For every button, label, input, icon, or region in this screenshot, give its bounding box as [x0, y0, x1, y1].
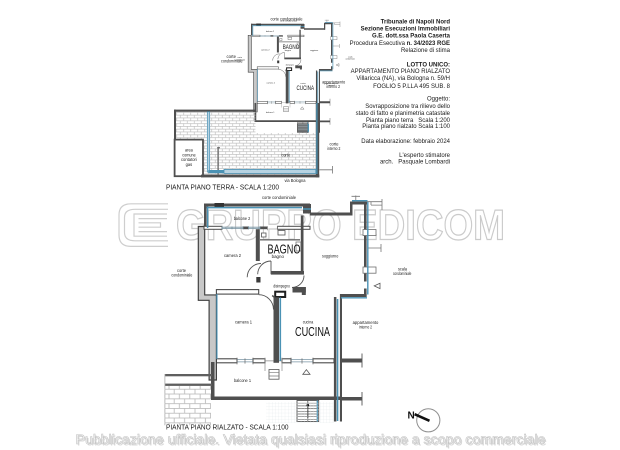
svg-text:stato di fatto e planimetria c: stato di fatto e planimetria catastale [356, 111, 451, 117]
svg-text:corte condominiale: corte condominiale [271, 16, 304, 21]
svg-text:G.E. dott.ssa Paola Caserta: G.E. dott.ssa Paola Caserta [372, 34, 451, 40]
svg-text:interno 2: interno 2 [359, 324, 372, 329]
svg-text:soggiorno: soggiorno [322, 254, 339, 259]
svg-text:Oggetto:: Oggetto: [427, 97, 450, 103]
svg-text:camera 1: camera 1 [235, 319, 253, 324]
svg-text:camera 2: camera 2 [224, 253, 242, 258]
svg-text:PIANTA PIANO RIALZATO - SCALA: PIANTA PIANO RIALZATO - SCALA 1:100 [166, 422, 289, 431]
svg-text:Tribunale di Napoli Nord: Tribunale di Napoli Nord [381, 19, 451, 25]
svg-text:corte: corte [281, 152, 291, 157]
svg-text:balcone 2: balcone 2 [234, 216, 251, 221]
svg-text:interno 2: interno 2 [327, 84, 341, 89]
svg-text:N: N [408, 411, 415, 422]
svg-text:GRUPPO EDICOM: GRUPPO EDICOM [176, 202, 505, 250]
svg-text:Pubblicazione ufficiale. Vieta: Pubblicazione ufficiale. Vietata qualsia… [76, 432, 546, 447]
svg-text:Procedura Esecutiva n. 34/2023: Procedura Esecutiva n. 34/2023 RGE [350, 41, 450, 47]
svg-text:corte condominiale: corte condominiale [262, 195, 297, 200]
svg-text:condominiale: condominiale [221, 58, 243, 63]
svg-text:L'esperto stimatore: L'esperto stimatore [399, 153, 450, 159]
svg-text:condominiale: condominiale [393, 271, 412, 276]
svg-text:balcone 1: balcone 1 [234, 378, 252, 383]
svg-text:CUCINA: CUCINA [295, 325, 330, 339]
svg-text:Relazione di stima: Relazione di stima [401, 48, 451, 54]
svg-text:cucina: cucina [303, 320, 314, 325]
svg-text:Data elaborazione: febbraio 20: Data elaborazione: febbraio 2024 [361, 139, 450, 145]
svg-text:Villaricca (NA), via Bologna n: Villaricca (NA), via Bologna n. 59/H [356, 76, 450, 82]
svg-text:APPARTAMENTO PIANO RIALZATO: APPARTAMENTO PIANO RIALZATO [351, 69, 451, 75]
svg-text:gas: gas [186, 162, 193, 167]
svg-text:Pianta piano rialzato Scala 1:: Pianta piano rialzato Scala 1:100 [362, 124, 450, 130]
svg-text:PIANTA PIANO TERRA - SCALA 1:2: PIANTA PIANO TERRA - SCALA 1:200 [166, 183, 279, 192]
svg-text:Pianta piano terra Scala 1:2: Pianta piano terra Scala 1:200 [366, 118, 451, 124]
svg-text:FOGLIO 5 P.LLA 495 SUB. 8: FOGLIO 5 P.LLA 495 SUB. 8 [373, 84, 451, 90]
svg-text:via Bologna: via Bologna [285, 178, 306, 183]
svg-text:Sezione Esecuzioni Immobiliari: Sezione Esecuzioni Immobiliari [361, 26, 451, 32]
svg-text:LOTTO UNICO:: LOTTO UNICO: [407, 62, 450, 68]
svg-text:disimpegno: disimpegno [273, 283, 290, 288]
svg-text:interno 2: interno 2 [327, 146, 341, 151]
svg-text:arch. Pasquale Lombardi: arch. Pasquale Lombardi [380, 160, 450, 166]
svg-text:BAGNO: BAGNO [268, 243, 301, 257]
svg-text:condominiale: condominiale [171, 273, 192, 278]
svg-text:Sovrapposizione tra rilievo de: Sovrapposizione tra rilievo dello [365, 104, 450, 110]
